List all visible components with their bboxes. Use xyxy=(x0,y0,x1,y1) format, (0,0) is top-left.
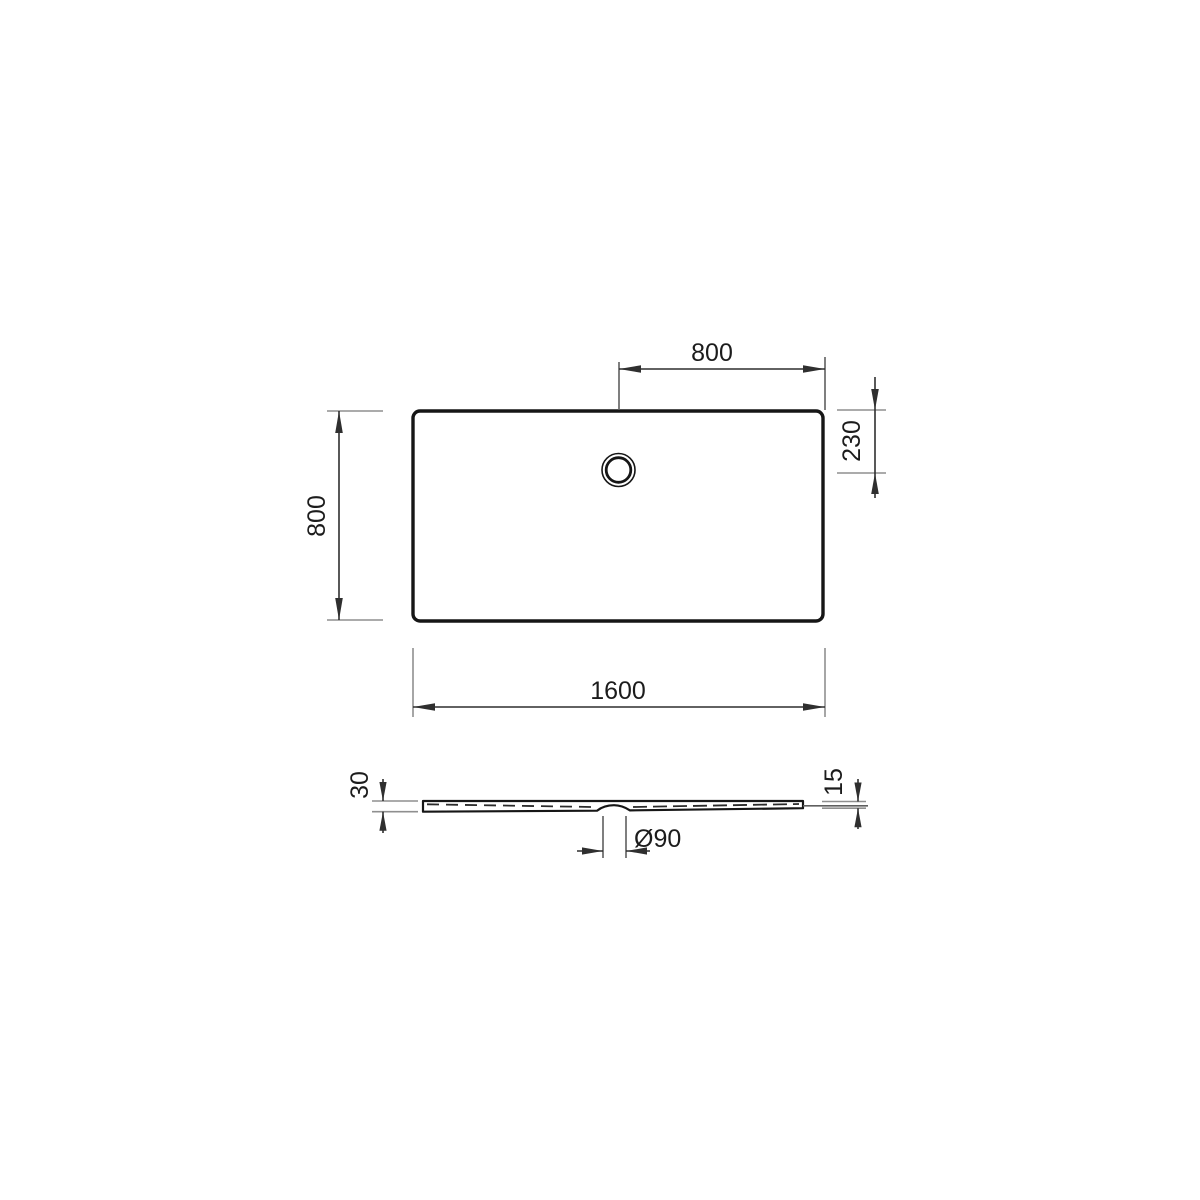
dim-label: Ø90 xyxy=(634,825,681,853)
arrow-up-icon xyxy=(871,473,879,494)
tray-outline xyxy=(413,411,823,621)
arrow-down-icon xyxy=(854,783,861,802)
arrow-right-icon xyxy=(803,703,825,711)
dim-label: 800 xyxy=(303,495,331,537)
section-view xyxy=(423,801,868,812)
arrow-right-icon xyxy=(803,365,825,373)
drawing-canvas: 800 230 800 1600 xyxy=(0,0,1200,1200)
dim-drain-to-right: 800 xyxy=(619,339,825,410)
dim-depth: 800 xyxy=(303,411,383,620)
arrow-left-icon xyxy=(413,703,435,711)
dim-label: 30 xyxy=(346,771,374,799)
dim-overall-width: 1600 xyxy=(413,648,825,717)
top-view xyxy=(413,411,823,621)
arrow-up-icon xyxy=(854,808,861,827)
dim-label: 230 xyxy=(838,420,866,462)
dim-top-to-drain: 230 xyxy=(837,377,886,498)
arrow-down-icon xyxy=(379,782,386,801)
shower-tray-technical-drawing: 800 230 800 1600 xyxy=(0,0,1200,1200)
arrow-up-icon xyxy=(335,411,343,433)
dim-label: 800 xyxy=(691,339,733,367)
arrow-up-icon xyxy=(379,812,386,831)
dim-drain-diameter: Ø90 xyxy=(577,816,681,858)
arrow-down-icon xyxy=(335,598,343,620)
arrow-down-icon xyxy=(871,389,879,410)
dim-edge-height: 30 xyxy=(346,771,418,833)
arrow-left-icon xyxy=(619,365,641,373)
dim-rim-height: 15 xyxy=(820,768,866,829)
tray-profile-outline xyxy=(423,801,803,812)
arrow-right-icon xyxy=(582,847,603,854)
dim-label: 1600 xyxy=(590,677,646,705)
dim-label: 15 xyxy=(820,768,848,796)
